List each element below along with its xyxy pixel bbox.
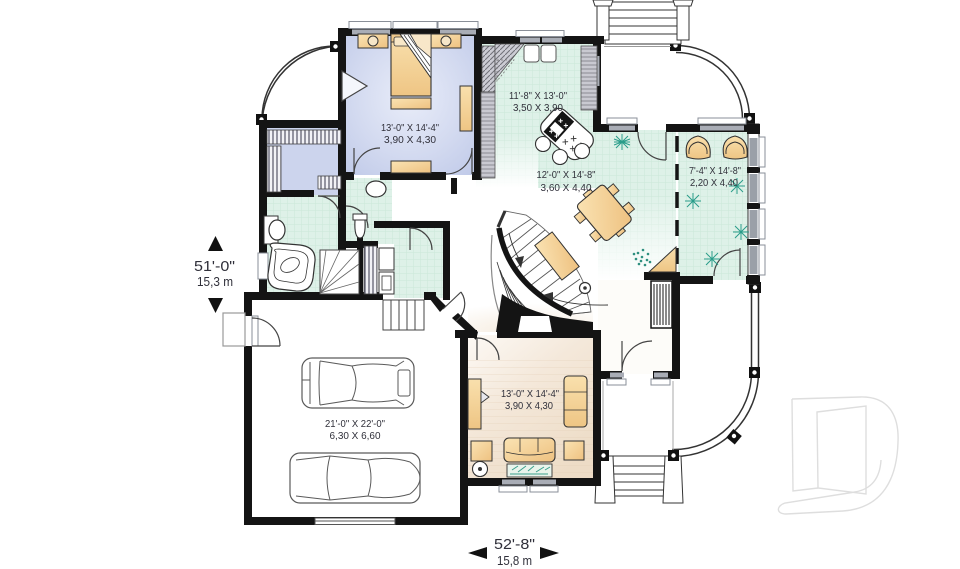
svg-text:3,50 X 3,90: 3,50 X 3,90	[513, 103, 563, 114]
svg-text:12'-0" X 14'-8": 12'-0" X 14'-8"	[537, 170, 596, 181]
svg-text:52'-8": 52'-8"	[494, 536, 535, 553]
svg-text:15,3 m: 15,3 m	[197, 275, 233, 289]
svg-text:2,20 X 4,40: 2,20 X 4,40	[690, 178, 738, 189]
svg-text:11'-8" X 13'-0": 11'-8" X 13'-0"	[509, 91, 567, 102]
svg-text:51'-0": 51'-0"	[194, 258, 235, 275]
svg-text:15,8 m: 15,8 m	[497, 554, 532, 568]
svg-text:6,30 X 6,60: 6,30 X 6,60	[330, 431, 381, 442]
svg-text:7'-4" X 14'-8": 7'-4" X 14'-8"	[689, 166, 741, 177]
svg-text:3,60 X 4,40: 3,60 X 4,40	[541, 183, 592, 194]
svg-text:13'-0" X 14'-4": 13'-0" X 14'-4"	[501, 389, 559, 400]
svg-text:13'-0" X 14'-4": 13'-0" X 14'-4"	[381, 123, 439, 134]
svg-text:3,90 X 4,30: 3,90 X 4,30	[384, 135, 436, 146]
svg-text:3,90 X 4,30: 3,90 X 4,30	[505, 401, 553, 412]
svg-text:21'-0" X 22'-0": 21'-0" X 22'-0"	[325, 419, 385, 430]
